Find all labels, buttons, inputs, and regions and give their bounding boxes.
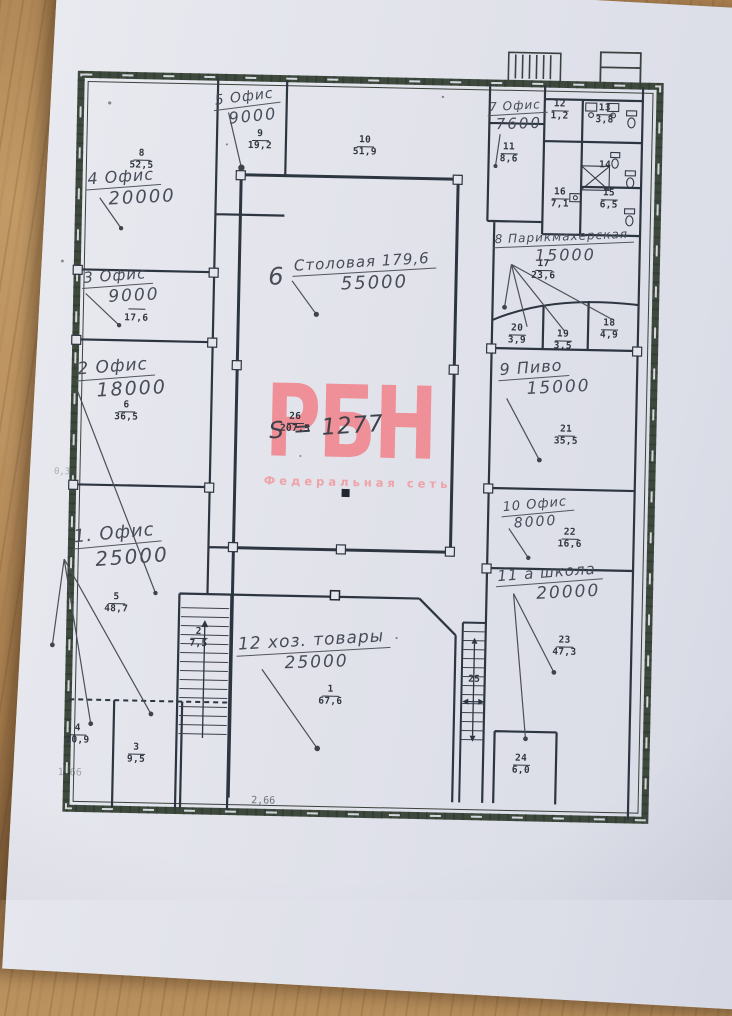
room-area: 3,8 [594, 115, 614, 126]
annotation-value: 18000 [96, 376, 167, 401]
annotation-value: 55000 [340, 270, 437, 294]
room-area: 1,2 [549, 111, 569, 122]
room-label-24: 246,0 [511, 754, 532, 777]
room-area: 7,5 [188, 639, 208, 650]
annotation-label: 7 Офис [487, 97, 547, 116]
room-area: 3,5 [553, 341, 573, 352]
room-label-18: 184,9 [599, 318, 620, 341]
annotation-office-5: 5 Офис 9000 [212, 86, 283, 130]
room-label-26: 26207,5 [279, 412, 312, 436]
floor-plan: РБН Федеральная сеть 1. Офис 25000 2 Офи… [63, 71, 663, 823]
annotation-school-11: 11 а школа 20000 [495, 561, 603, 606]
room-number: 14 [596, 160, 613, 171]
room-area: 10,9 [64, 735, 90, 746]
room-label-20: 203,9 [507, 323, 528, 346]
room-area: 36,5 [113, 412, 139, 423]
annotation-value: 7600 [496, 114, 548, 134]
annotation-dining-6: 6 Столовая 179,6 55000 [268, 250, 437, 296]
room-area: 67,6 [317, 696, 343, 707]
room-label-23: 2347,3 [551, 635, 578, 658]
room-label-12: 121,2 [549, 99, 570, 122]
room-label-2: 27,5 [188, 627, 209, 650]
room-label-5: 548,7 [103, 592, 130, 615]
annotation-office-7: 7 Офис 7600 [487, 98, 548, 134]
annotation-office-10: 10 Офис 8000 [500, 495, 575, 533]
room-label-1: 167,6 [317, 684, 344, 707]
room-area: 6,5 [599, 200, 619, 211]
annotation-body: Столовая 179,6 55000 [292, 250, 437, 296]
annotation-number: 6 [268, 262, 285, 290]
annotation-value: 15000 [535, 245, 635, 265]
dimension-label: 1,66 [58, 767, 82, 779]
room-area: 8,6 [499, 154, 519, 165]
room-area: 47,3 [551, 647, 577, 658]
dimension-label: 0,39 [54, 467, 76, 477]
annotation-office-4: 4 Офис 20000 [85, 164, 176, 210]
room-area: 3,9 [507, 335, 527, 346]
room-label-21: 2135,5 [553, 424, 580, 447]
room-label-11: 118,6 [499, 142, 520, 165]
top-porch-small [600, 52, 641, 83]
room-area: 51,9 [352, 147, 378, 158]
annotation-beer-9: 9 Пиво 15000 [497, 355, 591, 400]
annotation-office-2: 2 Офис 18000 [75, 354, 167, 402]
room-label-22: 2216,6 [556, 527, 583, 550]
annotation-household-12: 12 хоз. товары 25000 [236, 628, 392, 675]
partition-dotted [69, 699, 229, 702]
room-area: 17,6 [123, 313, 149, 324]
annotation-office-3: 3 Офис 9000 [81, 264, 160, 308]
room-label-4: 410,9 [64, 723, 91, 746]
annotation-value: 15000 [526, 376, 591, 399]
room-label-15: 156,5 [599, 188, 620, 211]
annotation-value: 9000 [108, 284, 160, 306]
room-area: 19,2 [247, 141, 273, 152]
room-area: 9,5 [126, 754, 146, 765]
annotation-value: 25000 [284, 650, 391, 673]
room-label-9: 919,2 [247, 129, 274, 152]
annotation-value: 20000 [108, 185, 176, 209]
dimension-label: 2,66 [251, 795, 275, 807]
room-area: 7,1 [550, 199, 570, 210]
annotation-value: 20000 [536, 581, 603, 604]
top-porch-steps [508, 52, 561, 81]
photo-of-floor-plan: РБН Федеральная сеть 1. Офис 25000 2 Офи… [0, 0, 732, 900]
annotation-hairdresser-8: 8 Парикмахерская 15000 [493, 229, 635, 266]
room-area: 23,6 [530, 271, 556, 282]
annotation-office-1: 1. Офис 25000 [71, 519, 170, 572]
room-label-6: 636,5 [113, 400, 140, 423]
room-area: 207,5 [279, 423, 311, 435]
room-number: 25 [466, 675, 483, 686]
room-area: 6,0 [511, 765, 531, 776]
room-area: 16,6 [556, 539, 582, 550]
room-area: 35,5 [553, 436, 579, 447]
room-area: 48,7 [103, 604, 129, 615]
room-label-25: 25 [466, 675, 483, 686]
room-area: 4,9 [599, 330, 619, 341]
room-label-14: 14 [596, 160, 613, 171]
room-label-13: 133,8 [594, 103, 615, 126]
room-label-16: 167,1 [550, 187, 571, 210]
paper-sheet: РБН Федеральная сеть 1. Офис 25000 2 Офи… [2, 0, 732, 1016]
room-label-19: 193,5 [553, 329, 574, 352]
room-label-3: 39,5 [126, 742, 147, 765]
room-label-10: 1051,9 [352, 135, 379, 158]
